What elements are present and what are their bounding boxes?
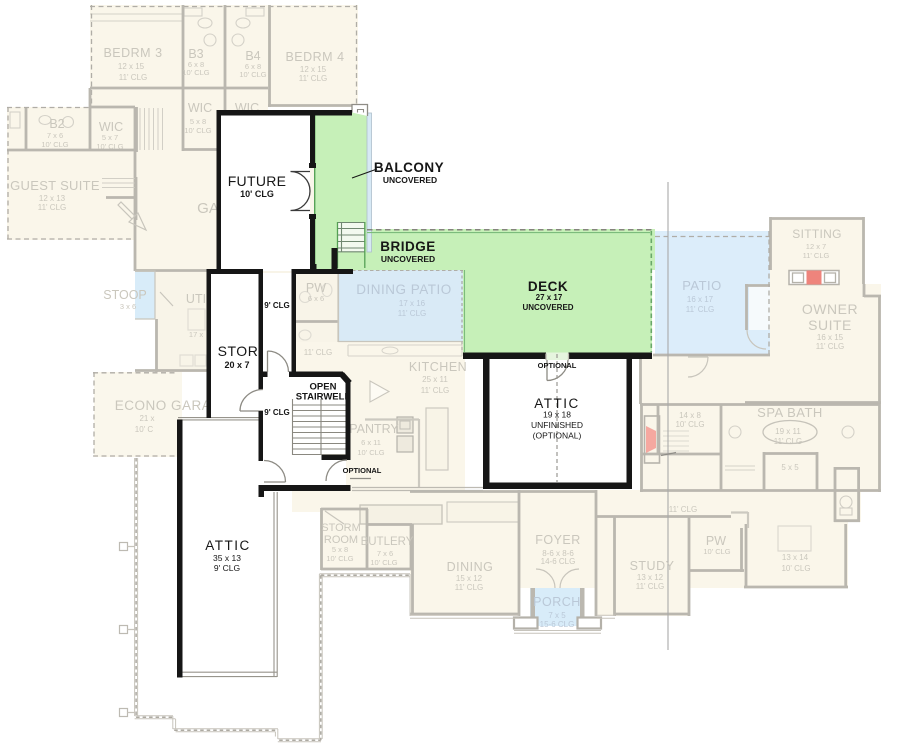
svg-text:10' CLG: 10' CLG — [326, 554, 353, 563]
svg-text:14 x 8: 14 x 8 — [679, 411, 701, 420]
svg-text:UNFINISHED: UNFINISHED — [531, 420, 583, 430]
svg-text:B2: B2 — [49, 117, 64, 131]
svg-text:14-6 CLG: 14-6 CLG — [541, 557, 576, 566]
svg-text:15 x 12: 15 x 12 — [456, 574, 483, 583]
svg-text:7 x 6: 7 x 6 — [377, 549, 393, 558]
svg-text:PORCH: PORCH — [533, 595, 581, 609]
svg-text:5 x 7: 5 x 7 — [102, 133, 118, 142]
svg-text:3 x 6: 3 x 6 — [120, 302, 136, 311]
svg-text:FOYER: FOYER — [535, 533, 581, 547]
svg-text:11' CLG: 11' CLG — [119, 73, 148, 82]
svg-text:UNCOVERED: UNCOVERED — [383, 175, 437, 185]
svg-text:19 x 11: 19 x 11 — [775, 427, 801, 436]
svg-text:OPTIONAL: OPTIONAL — [343, 466, 382, 475]
svg-text:11' CLG: 11' CLG — [686, 305, 715, 314]
svg-text:DINING: DINING — [447, 560, 494, 574]
svg-text:10' CLG: 10' CLG — [239, 70, 266, 79]
svg-text:11' CLG: 11' CLG — [421, 386, 450, 395]
svg-text:10' CLG: 10' CLG — [357, 448, 384, 457]
svg-text:10' CLG: 10' CLG — [184, 126, 211, 135]
svg-text:10' CLG: 10' CLG — [41, 140, 68, 149]
svg-text:STORM: STORM — [321, 522, 361, 534]
svg-text:11' CLG: 11' CLG — [38, 203, 67, 212]
svg-text:SUITE: SUITE — [808, 317, 852, 333]
svg-text:PW: PW — [306, 281, 326, 295]
svg-text:11' CLG: 11' CLG — [774, 437, 803, 446]
svg-text:DECK: DECK — [528, 279, 568, 294]
svg-text:10' CLG: 10' CLG — [675, 420, 704, 429]
svg-text:BEDRM 4: BEDRM 4 — [285, 50, 344, 64]
svg-text:SPA BATH: SPA BATH — [757, 405, 823, 420]
svg-text:11' CLG: 11' CLG — [299, 74, 328, 83]
svg-text:GUEST SUITE: GUEST SUITE — [10, 178, 100, 193]
svg-text:12 x 13: 12 x 13 — [39, 194, 66, 203]
svg-text:9' CLG: 9' CLG — [264, 301, 289, 310]
svg-text:10' C: 10' C — [135, 425, 154, 434]
svg-text:BALCONY: BALCONY — [374, 160, 444, 175]
svg-text:PANTRY: PANTRY — [349, 422, 399, 436]
svg-text:UTI: UTI — [186, 292, 206, 306]
svg-text:STAIRWELL: STAIRWELL — [296, 392, 351, 403]
svg-text:11' CLG: 11' CLG — [304, 348, 333, 357]
svg-text:B4: B4 — [245, 49, 260, 63]
svg-text:17 x: 17 x — [189, 330, 203, 339]
svg-text:WIC: WIC — [188, 101, 212, 115]
svg-text:12 x 15: 12 x 15 — [300, 65, 327, 74]
svg-text:12 x 15: 12 x 15 — [118, 62, 145, 71]
svg-text:UNCOVERED: UNCOVERED — [522, 303, 573, 312]
svg-text:10' CLG: 10' CLG — [370, 558, 397, 567]
svg-text:OWNER: OWNER — [802, 301, 858, 317]
svg-text:16 x 15: 16 x 15 — [817, 333, 844, 342]
svg-text:35 x 13: 35 x 13 — [213, 553, 241, 563]
svg-text:21 x: 21 x — [139, 414, 154, 423]
svg-text:DINING PATIO: DINING PATIO — [356, 282, 452, 297]
svg-text:KITCHEN: KITCHEN — [409, 360, 467, 374]
svg-text:5 x 8: 5 x 8 — [332, 545, 348, 554]
svg-text:10' CLG: 10' CLG — [781, 564, 810, 573]
svg-text:STOR: STOR — [218, 343, 259, 359]
svg-text:PATIO: PATIO — [682, 278, 722, 293]
svg-text:STOOP: STOOP — [103, 288, 147, 302]
svg-text:13 x 12: 13 x 12 — [637, 573, 664, 582]
svg-text:6 x 6: 6 x 6 — [308, 294, 324, 303]
svg-text:13 x 14: 13 x 14 — [782, 553, 809, 562]
svg-text:19 x 18: 19 x 18 — [543, 410, 571, 420]
svg-text:STUDY: STUDY — [630, 559, 675, 573]
svg-text:ECONO GARA: ECONO GARA — [115, 398, 212, 413]
svg-text:5 x 8: 5 x 8 — [190, 117, 206, 126]
svg-text:10' CLG: 10' CLG — [96, 142, 123, 151]
svg-text:FUTURE: FUTURE — [228, 173, 287, 189]
svg-text:BUTLERY: BUTLERY — [361, 536, 414, 548]
svg-text:WIC: WIC — [99, 120, 123, 134]
svg-text:BRIDGE: BRIDGE — [380, 239, 436, 254]
svg-text:7 x 6: 7 x 6 — [47, 131, 63, 140]
svg-text:5 x 5: 5 x 5 — [781, 463, 799, 472]
svg-text:(OPTIONAL): (OPTIONAL) — [533, 431, 582, 441]
svg-text:B3: B3 — [188, 47, 203, 61]
svg-text:10' CLG: 10' CLG — [182, 68, 209, 77]
svg-text:10' CLG: 10' CLG — [240, 189, 274, 199]
svg-text:7 x 5: 7 x 5 — [548, 611, 566, 620]
svg-text:15-6 CLG: 15-6 CLG — [540, 620, 575, 629]
svg-text:11' CLG: 11' CLG — [636, 582, 665, 591]
svg-text:ATTIC: ATTIC — [205, 538, 251, 553]
svg-text:20 x 7: 20 x 7 — [224, 360, 249, 370]
svg-text:9' CLG: 9' CLG — [214, 563, 240, 573]
svg-text:25 x 11: 25 x 11 — [422, 375, 448, 384]
svg-text:BEDRM 3: BEDRM 3 — [103, 46, 162, 60]
svg-text:11' CLG: 11' CLG — [816, 342, 845, 351]
svg-text:UNCOVERED: UNCOVERED — [381, 254, 435, 264]
svg-text:OPTIONAL: OPTIONAL — [538, 361, 577, 370]
svg-text:GA: GA — [197, 200, 219, 217]
svg-text:17 x 16: 17 x 16 — [399, 299, 426, 308]
svg-text:11' CLG: 11' CLG — [803, 251, 830, 260]
svg-text:27 x 17: 27 x 17 — [536, 293, 563, 302]
svg-text:6 x 11: 6 x 11 — [361, 438, 381, 447]
svg-text:11' CLG: 11' CLG — [398, 309, 427, 318]
svg-text:16 x 17: 16 x 17 — [687, 295, 714, 304]
svg-text:11' CLG: 11' CLG — [455, 583, 484, 592]
svg-text:10' CLG: 10' CLG — [703, 547, 730, 556]
svg-text:12 x 7: 12 x 7 — [806, 242, 826, 251]
svg-text:SITTING: SITTING — [792, 227, 841, 241]
svg-text:PW: PW — [706, 534, 726, 548]
svg-text:11' CLG: 11' CLG — [669, 505, 698, 514]
svg-text:9' CLG: 9' CLG — [264, 408, 289, 417]
